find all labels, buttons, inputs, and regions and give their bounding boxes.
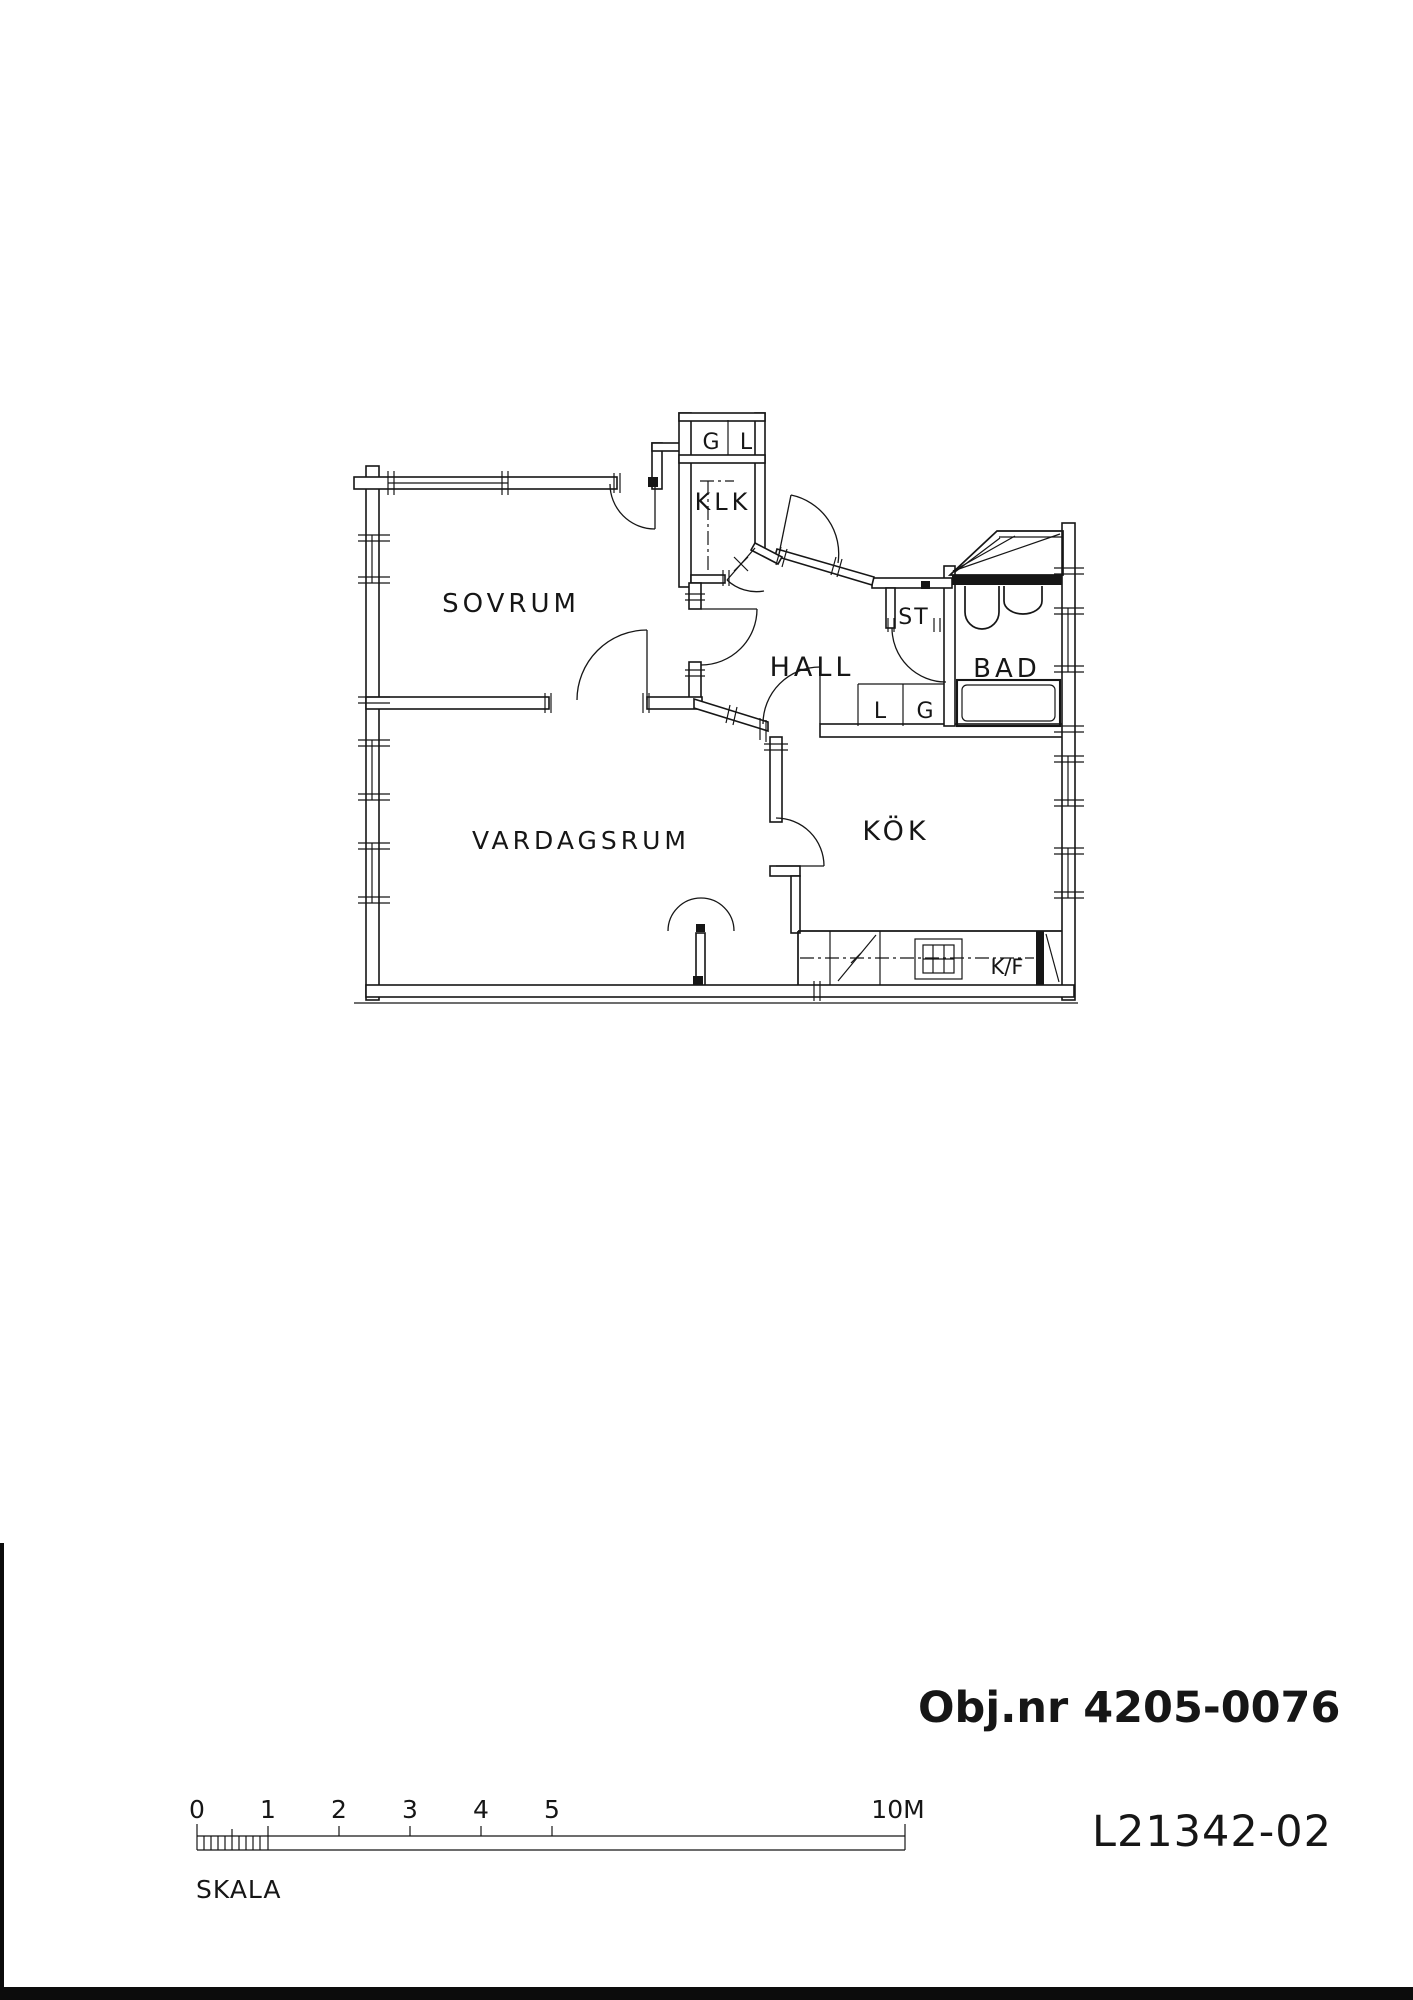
scale-tick-3: 3 (402, 1795, 418, 1824)
object-number: Obj.nr 4205-0076 (918, 1683, 1340, 1733)
scale-end-label: 10M (871, 1795, 924, 1824)
scale-bar-numbers: 0 1 2 3 4 5 10M (189, 1795, 925, 1824)
room-label-vardagsrum: VARDAGSRUM (472, 826, 690, 855)
scale-tick-4: 4 (473, 1795, 489, 1824)
page-edge-bottom (0, 1987, 1413, 2000)
closet-label-g-top: G (702, 430, 719, 455)
page-edges (0, 1543, 1413, 2000)
scale-label: SKALA (196, 1875, 282, 1904)
door-sovrum-hall (701, 609, 757, 665)
closet-label-l-hall: L (874, 699, 887, 724)
room-label-hall: HALL (770, 652, 855, 683)
door-st-closet (892, 628, 946, 682)
floor-plan-drawing: SOVRUM VARDAGSRUM HALL KÖK BAD KLK ST G … (0, 0, 1413, 2000)
wall-entry-diagonal (775, 549, 874, 585)
title-block: Obj.nr 4205-0076 L21342-02 (918, 1683, 1340, 1857)
door-sovrum-top (610, 484, 655, 529)
room-label-sovrum: SOVRUM (442, 589, 580, 619)
wall-bad-hall (944, 566, 955, 726)
fridge-freezer-diagonal (1046, 934, 1059, 982)
floor-plan-page: SOVRUM VARDAGSRUM HALL KÖK BAD KLK ST G … (0, 0, 1413, 2000)
stair-hatch-line (953, 534, 1060, 571)
stair-landing (950, 531, 1063, 575)
floor-plan: SOVRUM VARDAGSRUM HALL KÖK BAD KLK ST G … (354, 413, 1084, 1003)
wall-closet-right (755, 413, 765, 548)
closet-label-g-hall: G (916, 699, 933, 724)
fridge-freezer-label: K/F (991, 955, 1024, 979)
drawing-number: L21342-02 (1092, 1807, 1332, 1857)
toilet (965, 586, 999, 629)
wall-sovrum-vardagsrum-left (366, 697, 549, 709)
wall-klk-bottom (691, 575, 725, 583)
scale-tick-2: 2 (331, 1795, 347, 1824)
scale-tick-0: 0 (189, 1795, 205, 1824)
fridge-freezer-wall (1036, 931, 1044, 985)
room-label-bad: BAD (973, 654, 1041, 684)
wall-bad-top (952, 575, 1063, 585)
scale-bar-hatch (204, 1836, 260, 1850)
stove (915, 939, 962, 979)
scale-bar: 0 1 2 3 4 5 10M SKALA (189, 1795, 925, 1904)
bathtub (957, 680, 1060, 726)
scale-tick-1: 1 (260, 1795, 276, 1824)
closet-label-st: ST (898, 605, 929, 630)
room-label-klk: KLK (695, 488, 752, 516)
windows (358, 471, 1084, 903)
wall-hall-diagonal (694, 699, 768, 731)
stair-hatch-line (953, 536, 1015, 571)
page-edge-left (0, 1543, 4, 2000)
closet-label-l-top: L (740, 430, 753, 455)
wall-closet-left (679, 413, 691, 587)
door-sovrum-vardagsrum (577, 630, 647, 700)
wall-bottom (366, 985, 1074, 997)
door-vardagsrum-kok (776, 818, 824, 866)
window-sovrum-top (388, 471, 508, 495)
washbasin (1004, 586, 1042, 614)
room-label-kok: KÖK (862, 815, 929, 847)
scale-tick-5: 5 (544, 1795, 560, 1824)
